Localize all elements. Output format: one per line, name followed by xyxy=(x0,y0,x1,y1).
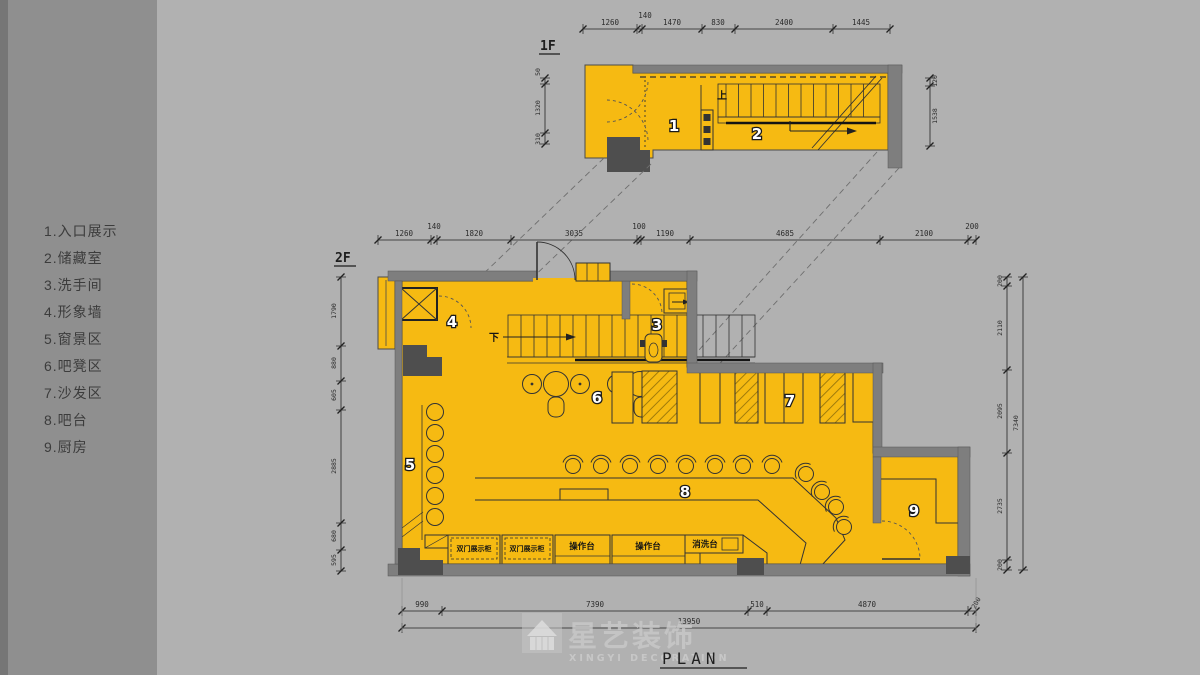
svg-text:990: 990 xyxy=(415,600,429,609)
svg-text:4685: 4685 xyxy=(776,229,794,238)
f1-right-dims: 120 1538 xyxy=(925,75,939,150)
svg-text:140: 140 xyxy=(427,222,441,231)
svg-text:7390: 7390 xyxy=(586,600,605,609)
svg-text:1260: 1260 xyxy=(601,18,620,27)
svg-text:4870: 4870 xyxy=(858,600,877,609)
svg-text:1538: 1538 xyxy=(931,108,939,124)
stair-down-label: 下 xyxy=(489,332,499,344)
svg-text:1260: 1260 xyxy=(395,229,414,238)
svg-text:2110: 2110 xyxy=(996,320,1004,336)
svg-text:140: 140 xyxy=(638,11,652,20)
svg-text:680: 680 xyxy=(330,530,338,542)
f2-left-dims: 1790 880 605 2885 680 595 xyxy=(330,274,346,575)
f1-top-dims: 1260 140 1470 830 2400 1445 xyxy=(580,11,894,34)
svg-text:2885: 2885 xyxy=(330,458,338,474)
f2-entry-door xyxy=(533,242,610,286)
f2-title: 2F xyxy=(335,251,351,266)
svg-text:510: 510 xyxy=(750,600,764,609)
counter-label-5: 消洗台 xyxy=(692,539,718,550)
stair-up-label: 上 xyxy=(717,89,727,102)
svg-text:2400: 2400 xyxy=(775,18,794,27)
floor-plan-page: 1.入口展示 2.储藏室 3.洗手间 4.形象墙 5.窗景区 6.吧凳区 7.沙… xyxy=(0,0,1200,675)
counter-label-4: 操作台 xyxy=(635,541,661,552)
svg-text:2735: 2735 xyxy=(996,498,1004,514)
svg-text:120: 120 xyxy=(931,75,939,87)
room-9-label: 9 xyxy=(909,502,919,520)
svg-text:200: 200 xyxy=(996,275,1004,287)
f2-sofa-area xyxy=(612,371,875,423)
room-5-label: 5 xyxy=(405,456,415,474)
svg-text:1190: 1190 xyxy=(656,229,675,238)
svg-text:605: 605 xyxy=(330,389,338,401)
f1-right-wall xyxy=(888,65,902,168)
svg-text:100: 100 xyxy=(632,222,646,231)
plan-1f xyxy=(585,65,902,172)
svg-text:7340: 7340 xyxy=(1012,415,1020,431)
counter-label-1: 双门展示柜 xyxy=(457,544,492,553)
room-6-label: 6 xyxy=(592,389,602,407)
plan-2f xyxy=(378,242,970,576)
svg-text:2095: 2095 xyxy=(996,403,1004,419)
svg-text:2100: 2100 xyxy=(915,229,934,238)
svg-text:200: 200 xyxy=(996,559,1004,571)
svg-text:1320: 1320 xyxy=(534,100,542,116)
room-4-label: 4 xyxy=(447,313,457,331)
counter-label-2: 双门展示柜 xyxy=(510,544,545,553)
room-3-label: 3 xyxy=(652,316,662,334)
plan-title: PLAN xyxy=(662,649,721,668)
svg-text:1790: 1790 xyxy=(330,303,338,319)
floor-plan-drawing: 1260 140 1470 830 2400 1445 50 1320 310 … xyxy=(0,0,1200,675)
logo-name-cn: 星艺装饰 xyxy=(568,619,696,653)
svg-text:200: 200 xyxy=(965,222,979,231)
svg-text:830: 830 xyxy=(711,18,725,27)
f1-title: 1F xyxy=(540,39,556,54)
toilet xyxy=(645,334,662,362)
f1-top-wall xyxy=(633,65,902,73)
f2-right-dims: 200 2110 2095 2735 200 7340 xyxy=(996,274,1028,574)
room-7-label: 7 xyxy=(785,392,795,410)
svg-text:1445: 1445 xyxy=(852,18,870,27)
room-2-label: 2 xyxy=(752,125,762,143)
f2-top-dims: 1260 140 1820 3035 100 1190 4685 2100 20… xyxy=(375,222,980,245)
f2-xbox xyxy=(401,288,437,320)
counter-label-3: 操作台 xyxy=(569,541,595,552)
svg-text:595: 595 xyxy=(330,554,338,566)
svg-text:50: 50 xyxy=(534,68,542,76)
svg-text:1820: 1820 xyxy=(465,229,484,238)
svg-text:3035: 3035 xyxy=(565,229,583,238)
svg-text:880: 880 xyxy=(330,357,338,369)
watermark-logo: 星艺装饰 XINGYI DECORATION PLAN xyxy=(522,613,747,668)
svg-text:1470: 1470 xyxy=(663,18,682,27)
f1-cabinet xyxy=(701,110,713,150)
f2-window-strip xyxy=(378,277,395,349)
room-8-label: 8 xyxy=(680,483,690,501)
svg-text:310: 310 xyxy=(534,133,542,145)
room-1-label: 1 xyxy=(669,117,679,135)
f1-left-dims: 50 1320 310 xyxy=(534,68,550,147)
